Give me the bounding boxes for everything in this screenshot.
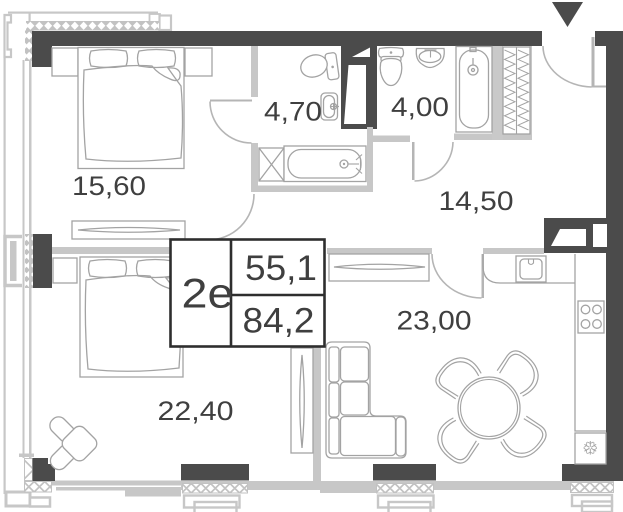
svg-text:2е: 2е — [182, 270, 234, 317]
svg-text:15,60: 15,60 — [72, 171, 146, 201]
svg-text:14,50: 14,50 — [439, 186, 514, 216]
svg-text:23,00: 23,00 — [397, 306, 472, 336]
svg-text:4,70: 4,70 — [264, 97, 322, 127]
svg-text:22,40: 22,40 — [158, 396, 234, 426]
svg-text:84,2: 84,2 — [243, 302, 315, 341]
svg-text:4,00: 4,00 — [391, 92, 449, 122]
svg-text:55,1: 55,1 — [245, 249, 317, 288]
